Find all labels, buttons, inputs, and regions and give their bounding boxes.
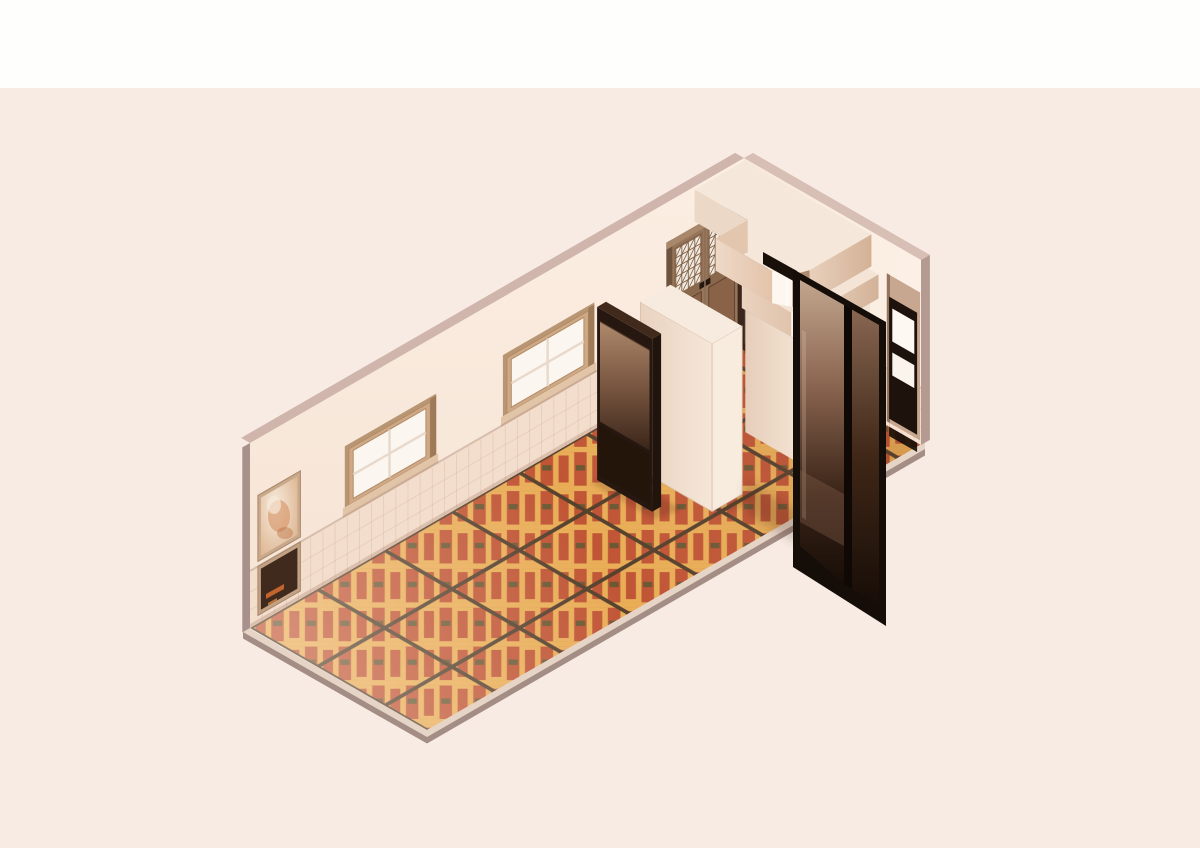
background-top (0, 0, 1200, 88)
glass-doors-divider (844, 305, 852, 589)
picture-art-blob (277, 527, 293, 539)
wall-end-edge-left (242, 443, 250, 632)
display-cabinet-side (652, 334, 661, 512)
screenshot-root (0, 0, 1200, 848)
window-right-reveal (588, 304, 594, 369)
picture-art-blob (267, 496, 281, 514)
room-render (0, 0, 1200, 848)
wall-end-edge-right (921, 255, 930, 445)
partition-box-side (712, 326, 742, 511)
window-left-reveal (430, 396, 436, 461)
glass-door-right-pane (852, 310, 879, 605)
